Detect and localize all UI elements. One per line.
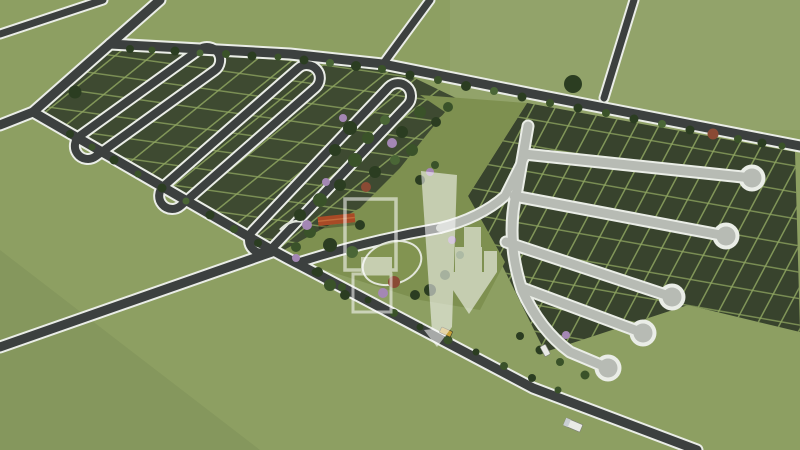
subdivision-map: [0, 0, 800, 450]
large-tree: [564, 75, 582, 93]
red-tree: [708, 129, 719, 140]
watermark-arrow-stem: [455, 247, 482, 273]
watermark-bar-short: [484, 251, 497, 272]
aerial-render: [0, 0, 800, 450]
watermark-small-block: [361, 257, 392, 274]
